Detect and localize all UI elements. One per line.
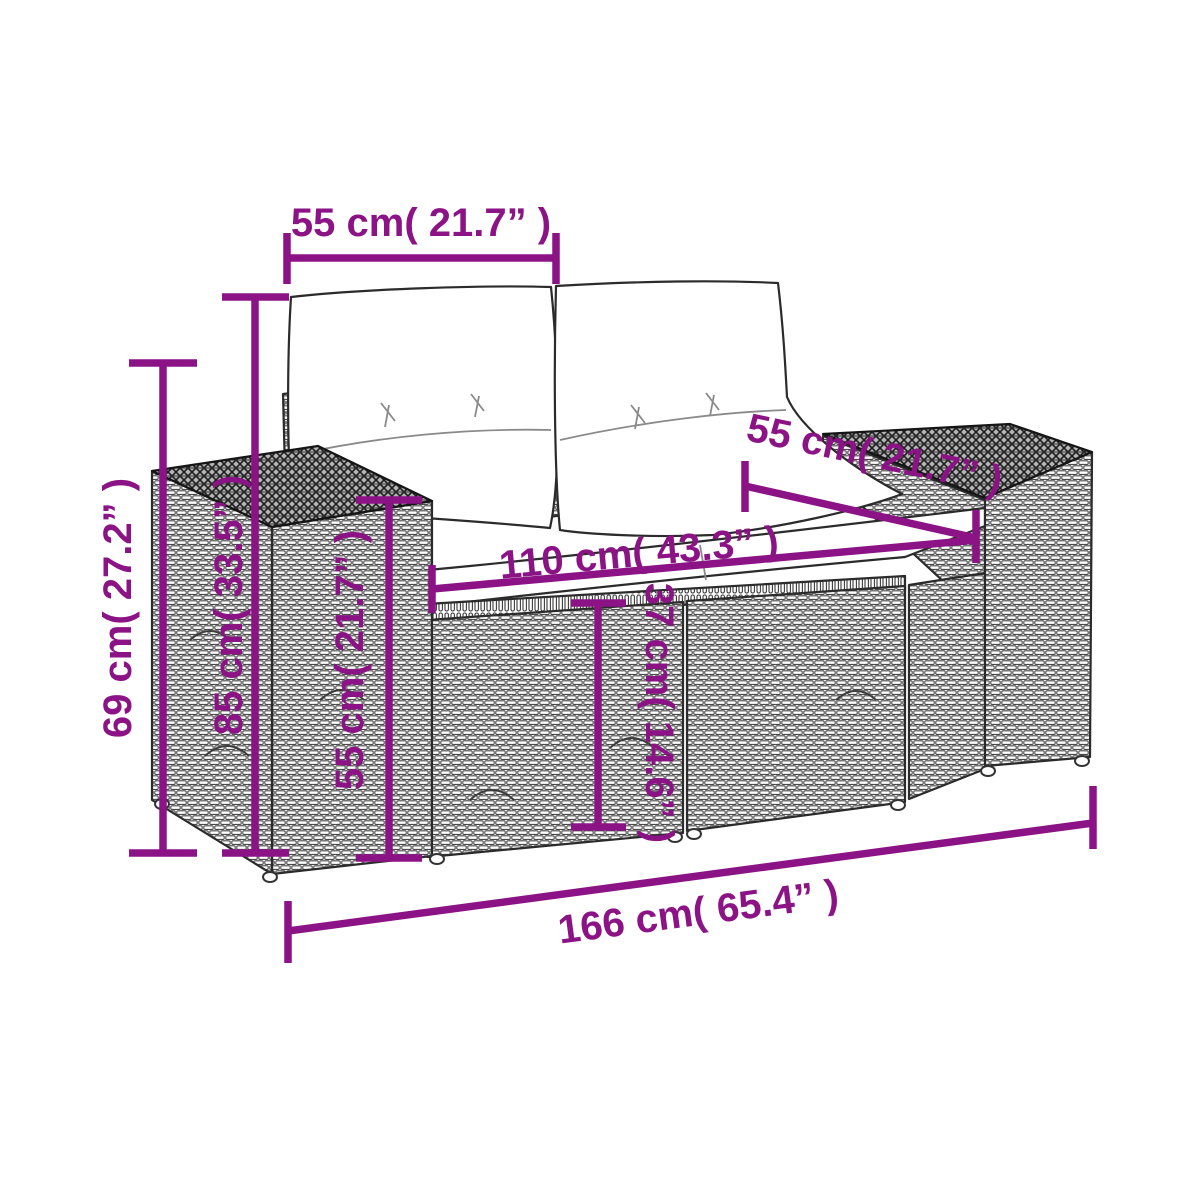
seat-box-right [687,586,905,831]
dimension-label: 55 cm( 21.7” ) [328,530,372,790]
seat-box-end [909,573,985,799]
dimension-label: 55 cm( 21.7” ) [291,201,551,245]
sofa-illustration [152,281,1092,882]
back-cushion-right [555,281,902,536]
dimension-label: 85 cm( 33.5” ) [207,475,251,735]
dimension-label: 166 cm( 65.4” ) [555,872,841,953]
sofa-dimension-diagram: 55 cm( 21.7” ) 55 cm( 21.7” ) 110 cm( 43… [0,0,1200,1200]
diagram-canvas: 55 cm( 21.7” ) 55 cm( 21.7” ) 110 cm( 43… [0,0,1200,1200]
dimension-label: 69 cm( 27.2” ) [96,478,140,738]
dimension-label: 37 cm( 14.6” ) [637,583,681,843]
dimension-cushion-width-top: 55 cm( 21.7” ) [287,201,556,284]
